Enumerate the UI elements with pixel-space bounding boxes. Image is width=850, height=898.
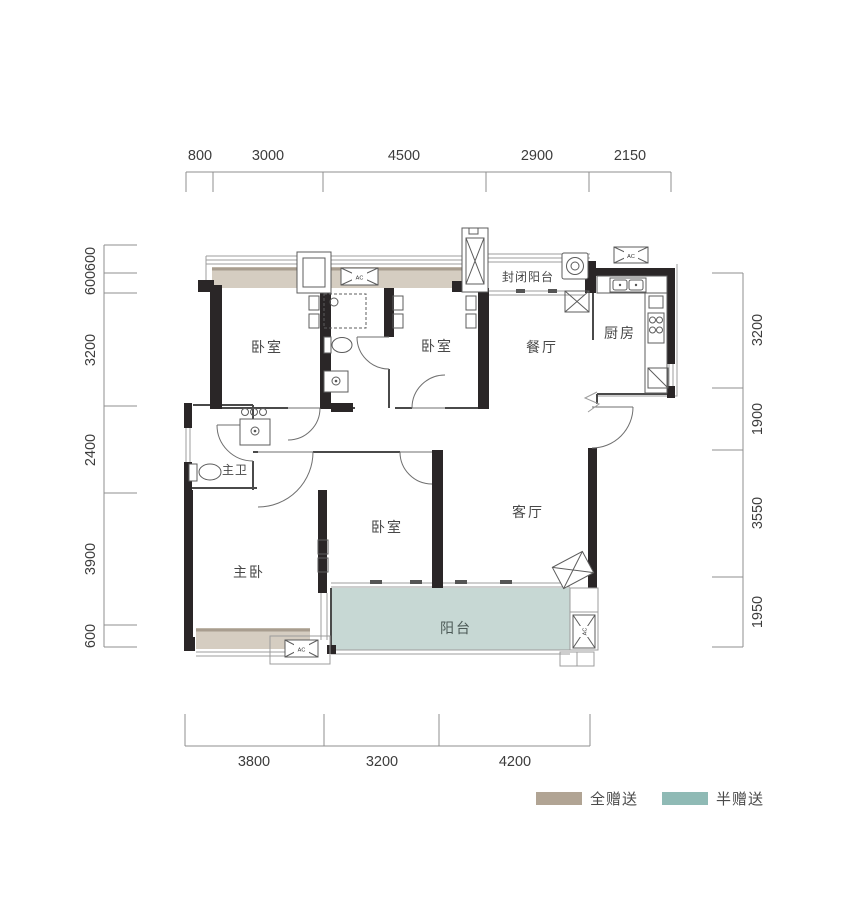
wall-kitchen-right-upper — [667, 268, 675, 364]
wall-master-left — [184, 490, 193, 637]
wall-bedroom3-left — [318, 490, 327, 593]
wall-bedroom3-right — [432, 450, 443, 588]
label-enclosed-balcony: 封闭阳台 — [502, 269, 554, 284]
label-bedroom-top-right: 卧室 — [421, 338, 453, 354]
dim-left-3: 2400 — [83, 434, 99, 466]
dim-top-line — [186, 172, 671, 192]
dim-bottom-line — [185, 714, 590, 746]
legend: 全赠送 半赠送 — [536, 790, 764, 808]
dim-right-0: 3200 — [750, 314, 766, 346]
gift-areas — [196, 267, 570, 650]
closet-mark — [309, 314, 319, 328]
dim-bottom-1: 3200 — [366, 754, 398, 770]
sliding-door-balcony-top — [331, 583, 570, 587]
floor-plan-page: 800 3000 4500 2900 2150 600 600 3200 240… — [0, 0, 850, 893]
ac-label: AC — [627, 254, 635, 260]
legend-full-gift-label: 全赠送 — [590, 790, 638, 808]
dim-left-5: 600 — [83, 624, 99, 648]
dim-left-1: 600 — [83, 271, 99, 295]
legend-full-gift-swatch — [536, 792, 582, 805]
closet-mark — [393, 314, 403, 328]
label-balcony: 阳台 — [440, 620, 472, 636]
wall-balcony-cap-left — [327, 645, 336, 654]
fitting — [242, 409, 249, 416]
sink-drain — [635, 284, 637, 286]
window-master-balcony-divider — [321, 593, 327, 640]
sliding-window-enclosed-balcony-bottom — [489, 291, 585, 295]
door-entry — [592, 407, 633, 448]
fridge-mark — [648, 368, 668, 388]
dim-right-1: 1900 — [750, 403, 766, 435]
legend-half-gift-swatch — [662, 792, 708, 805]
toilet-tank — [189, 464, 197, 481]
closet-mark — [309, 296, 319, 310]
door-bedroom1 — [288, 408, 320, 440]
mullion-mark — [410, 580, 422, 584]
dim-bottom-2: 4200 — [499, 754, 531, 770]
sink-drain — [619, 284, 621, 286]
mullion-mark — [548, 289, 557, 293]
wall-bedroom2-dining — [478, 288, 489, 409]
label-master-bedroom: 主卧 — [233, 564, 265, 580]
dim-left-2: 3200 — [83, 334, 99, 366]
sink-drain — [335, 380, 338, 383]
dim-top-0: 800 — [188, 148, 212, 164]
floor-plan-svg: 800 3000 4500 2900 2150 600 600 3200 240… — [0, 0, 850, 893]
ac-label: AC — [583, 628, 589, 636]
ac-label: AC — [356, 276, 364, 282]
window-balcony-bottom — [331, 650, 570, 654]
vanity-drain — [254, 430, 257, 433]
dim-left-4: 3900 — [83, 543, 99, 575]
ac-label: AC — [298, 648, 306, 654]
laundry-machine — [562, 253, 588, 279]
mullion-mark — [500, 580, 512, 584]
door-bedroom3 — [400, 452, 432, 484]
door-bath — [357, 337, 389, 369]
door-master-bedroom — [258, 452, 313, 507]
dim-right-line — [712, 273, 743, 647]
wall-kitchen-top — [593, 268, 675, 276]
dim-bottom-0: 3800 — [238, 754, 270, 770]
doors — [217, 337, 633, 507]
dim-right-3: 1950 — [750, 596, 766, 628]
wall-bath-bedroom2 — [384, 288, 394, 337]
toilet-bowl — [199, 464, 221, 480]
ac-unit-top-middle: AC — [341, 268, 378, 285]
closet-mark — [393, 296, 403, 310]
dimension-chain-right: 3200 1900 3550 1950 — [712, 273, 766, 647]
ac-unit-top-right: AC — [614, 247, 648, 263]
window-kitchen-right — [669, 364, 673, 388]
dim-top-2: 4500 — [388, 148, 420, 164]
dim-top-3: 2900 — [521, 148, 553, 164]
half-gift-balcony-area — [331, 588, 570, 650]
label-living: 客厅 — [512, 504, 544, 520]
wall-bedroom1-left — [210, 285, 222, 409]
label-dining: 餐厅 — [526, 339, 558, 355]
ac-unit-balcony-right: AC — [570, 588, 598, 650]
closet-mark — [466, 314, 476, 328]
dim-right-2: 3550 — [750, 497, 766, 529]
legend-half-gift-label: 半赠送 — [716, 791, 764, 808]
mullion-mark — [455, 580, 467, 584]
mullion-mark — [370, 580, 382, 584]
toilet-bowl — [332, 338, 352, 353]
wall-master-corner-bottom — [184, 637, 195, 651]
window-master-bath-left — [186, 428, 190, 462]
legend-half-gift: 半赠送 — [662, 791, 764, 808]
fitting — [260, 409, 267, 416]
wall-bath-bottom-block — [331, 403, 353, 412]
label-bedroom-bottom: 卧室 — [371, 519, 403, 535]
dimension-chain-bottom: 3800 3200 4200 — [185, 714, 590, 770]
dim-top-1: 3000 — [252, 148, 284, 164]
dim-top-4: 2150 — [614, 148, 646, 164]
flue-box-x — [565, 291, 589, 312]
legend-full-gift: 全赠送 — [536, 790, 638, 808]
dim-left-line — [104, 245, 137, 647]
dim-left-0: 600 — [83, 247, 99, 271]
label-bedroom-top-left: 卧室 — [251, 339, 283, 355]
label-kitchen: 厨房 — [604, 325, 636, 341]
mullion-mark — [516, 289, 525, 293]
closet-mark — [466, 296, 476, 310]
shower-drain — [330, 298, 338, 306]
dimension-chain-top: 800 3000 4500 2900 2150 — [186, 148, 671, 192]
door-bedroom2 — [412, 375, 445, 408]
wall-master-bath-left-upper — [184, 403, 192, 428]
toilet-tank — [324, 337, 331, 353]
label-master-bath: 主卫 — [222, 463, 248, 477]
dimension-chain-left: 600 600 3200 2400 3900 600 — [83, 245, 137, 648]
kitchen-appliance — [649, 296, 663, 308]
